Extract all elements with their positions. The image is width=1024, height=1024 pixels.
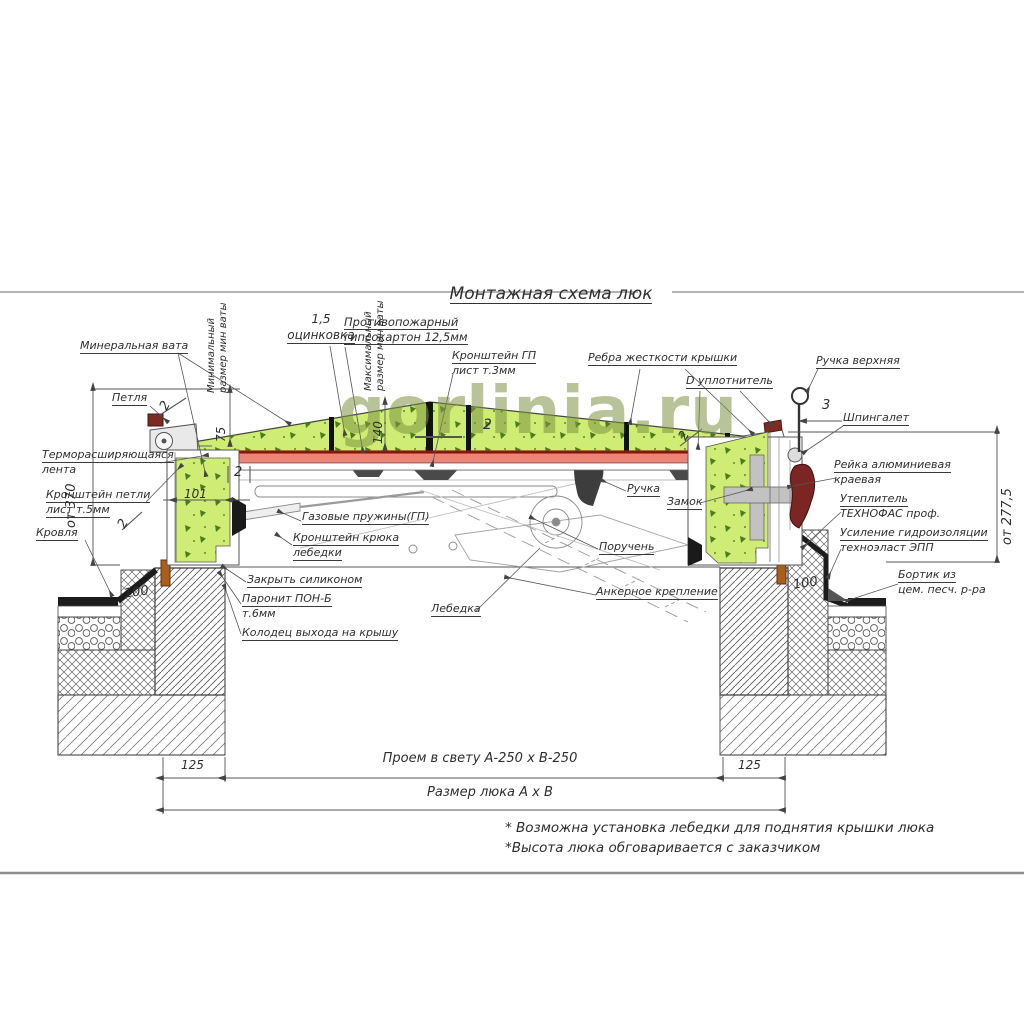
label-lock: Замок <box>667 495 702 510</box>
label-winch: Лебедка <box>431 602 481 617</box>
label-gas-springs: Газовые пружины(ГП) <box>302 510 429 525</box>
note-winch-option: * Возможна установка лебедки для подняти… <box>505 821 934 835</box>
label-paronit: Паронит ПОН-Б т.6мм <box>242 592 332 621</box>
label-cover-ribs: Ребра жесткости крышки <box>588 351 737 366</box>
label-hinge: Петля <box>112 391 147 406</box>
label-cement-curb: Бортик из цем. песч. р-ра <box>898 568 986 597</box>
label-gp-bracket: Кронштейн ГП лист т.3мм <box>452 349 536 378</box>
label-waterproofing: Усиление гидроизоляции техноэласт ЭПП <box>840 526 988 555</box>
label-min-wool-size: Минимальныйразмер мин ваты <box>206 302 230 393</box>
label-mineral-wool: Минеральная вата <box>80 339 188 354</box>
label-roof: Кровля <box>36 526 78 541</box>
dimension-opening-text: Проем в свету А-250 х В-250 <box>330 752 630 766</box>
lock-bar-horizontal <box>724 487 798 503</box>
label-anchor: Анкерное крепление <box>596 585 718 600</box>
dimension-140: 140 <box>371 421 385 444</box>
cement-curb-shape <box>828 588 848 601</box>
drawing-sheet: gorlinia.ru Монтажная схема люк Минераль… <box>0 0 1024 1024</box>
label-top-handle: Ручка верхняя <box>816 354 900 369</box>
label-fire-gypsum: Противопожарный гипсокартон 12,5мм <box>344 315 468 345</box>
latch-handle <box>790 464 815 528</box>
dimension-125-left: 125 <box>181 758 204 772</box>
thickness-2-lid: 2 <box>483 417 492 433</box>
dimension-height-right: от 277,5 <box>1000 488 1015 545</box>
note-hatch-height: *Высота люка обговаривается с заказчиком <box>505 841 820 855</box>
dimension-height-left: от 370 <box>64 484 79 528</box>
dimension-101: 101 <box>184 487 207 501</box>
label-hook-bracket: Кронштейн крюка лебедки <box>293 531 399 561</box>
dimension-hatch-size-text: Размер люка А х В <box>360 786 620 800</box>
hinge-assembly <box>148 414 212 452</box>
label-handle: Ручка <box>627 482 660 497</box>
label-d-seal: D уплотнитель <box>686 374 773 389</box>
top-handle-ring <box>792 388 808 404</box>
label-handrail: Поручень <box>599 540 654 555</box>
thickness-2-frame: 2 <box>234 465 242 480</box>
thickness-3-rod: 3 <box>822 398 830 413</box>
curb-bracket <box>232 497 246 536</box>
label-thermo-tape: Терморасширяющаяся лента <box>42 448 174 477</box>
label-latch: Шпингалет <box>843 411 909 426</box>
label-insulation: Утеплитель ТЕХНОФАС проф. <box>840 492 940 521</box>
label-hinge-bracket: Кронштейн петли лист т.5мм <box>46 488 150 518</box>
label-roof-well: Колодец выхода на крышу <box>242 626 398 641</box>
dimension-75: 75 <box>214 427 228 442</box>
drawing-title: Монтажная схема люк <box>415 287 687 304</box>
label-silicone: Закрыть силиконом <box>247 573 362 588</box>
dimension-125-right: 125 <box>738 758 761 772</box>
label-edge-rail: Рейка алюминиевая краевая <box>834 458 951 487</box>
